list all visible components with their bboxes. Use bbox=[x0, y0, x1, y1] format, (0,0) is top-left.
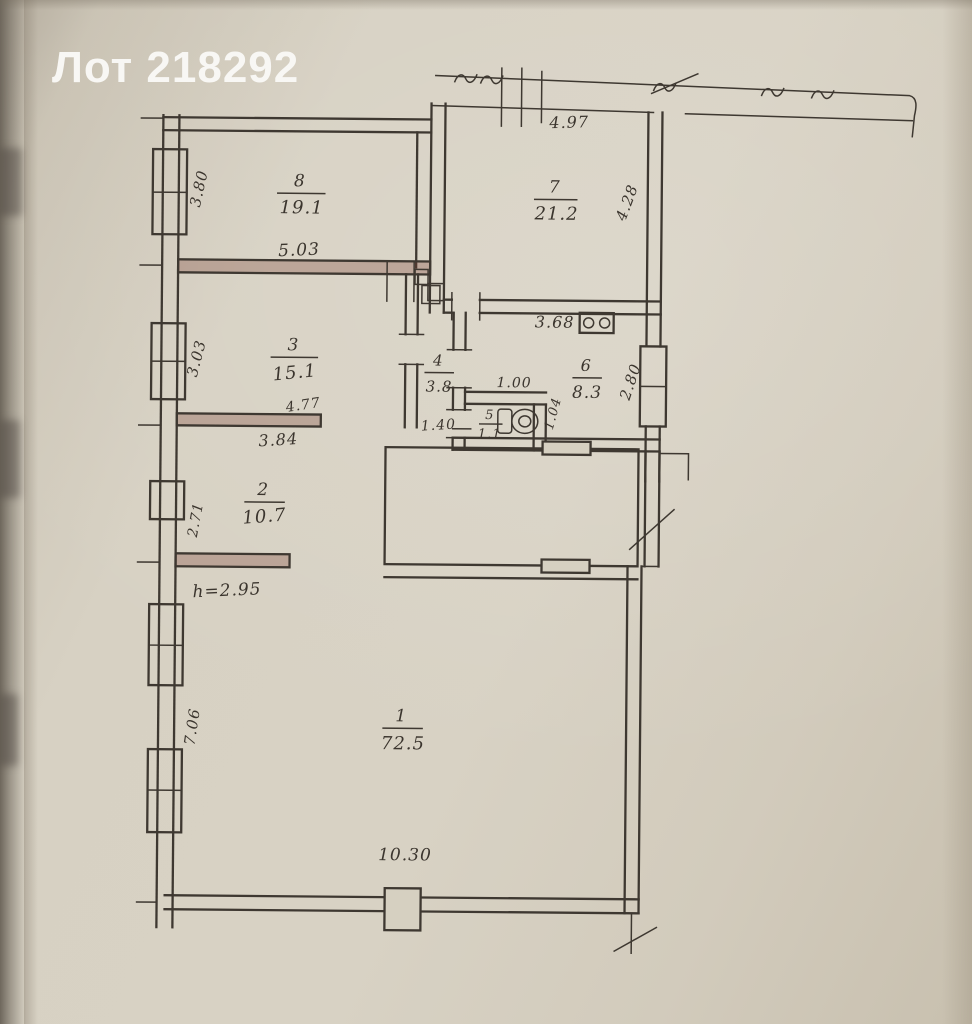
dim-room8-bottom: 5.03 bbox=[278, 239, 321, 261]
room-number: 4 bbox=[432, 352, 444, 370]
room-6-label: 6 8.3 bbox=[572, 356, 602, 403]
room-8-label: 8 19.1 bbox=[278, 171, 325, 218]
dim-room1-bottom: 10.30 bbox=[378, 845, 432, 865]
room-2-bottom-wall bbox=[176, 553, 290, 567]
room-number: 2 bbox=[256, 480, 269, 500]
break-slash bbox=[614, 927, 656, 951]
door-leaf bbox=[541, 559, 589, 572]
dim-room7-right: 4.28 bbox=[612, 182, 642, 224]
room-area: 21.2 bbox=[533, 203, 578, 224]
room-area: 72.5 bbox=[381, 733, 425, 754]
room-4-label: 4 3.8 bbox=[425, 351, 453, 395]
chimney-block bbox=[384, 888, 420, 930]
dim-ceiling-height: h=2.95 bbox=[192, 579, 262, 602]
room-1-label: 1 72.5 bbox=[381, 706, 425, 754]
room-number: 3 bbox=[287, 335, 299, 355]
room-area: 15.1 bbox=[272, 360, 318, 385]
toilet-icon bbox=[498, 409, 538, 433]
room-number: 8 bbox=[294, 171, 306, 191]
dim-wc-door: 1.40 bbox=[420, 417, 456, 435]
room-number: 7 bbox=[549, 178, 561, 198]
dim-room1-left: 7.06 bbox=[180, 707, 203, 747]
window-hatch bbox=[150, 481, 184, 519]
floor-plan: 8 19.1 7 21.2 3 15.1 4 3.8 5 bbox=[0, 0, 972, 1024]
room-number: 1 bbox=[395, 706, 407, 726]
break-squiggle bbox=[455, 75, 477, 83]
dim-room7-top: 4.97 bbox=[548, 112, 589, 132]
balcony-edge-line bbox=[431, 68, 916, 137]
room-2-label: 2 10.7 bbox=[241, 480, 287, 529]
room-7-label: 7 21.2 bbox=[533, 177, 578, 224]
room-number: 5 bbox=[485, 408, 494, 423]
dim-wc-width: 1.00 bbox=[496, 375, 531, 391]
room-1-walls bbox=[164, 562, 659, 953]
left-outer-wall bbox=[134, 115, 179, 927]
room-area: 1.1 bbox=[478, 427, 502, 442]
screenshot-root: 8 19.1 7 21.2 3 15.1 4 3.8 5 bbox=[0, 0, 972, 1024]
room-number: 6 bbox=[581, 356, 592, 375]
room-area: 3.8 bbox=[426, 377, 453, 395]
dim-room3-width-bottom: 3.84 bbox=[258, 429, 299, 450]
dim-room6-top: 3.68 bbox=[535, 312, 575, 331]
dim-wc-right: 1.04 bbox=[542, 396, 565, 432]
hall-walls bbox=[384, 440, 688, 580]
room-3-label: 3 15.1 bbox=[271, 335, 318, 386]
dim-room8-left: 3.80 bbox=[186, 168, 212, 208]
break-squiggle bbox=[481, 76, 503, 84]
room-2-walls bbox=[176, 553, 290, 567]
dim-room3-width-top: 4.77 bbox=[284, 395, 322, 416]
stove-icon bbox=[580, 313, 614, 333]
room-8-bottom-wall bbox=[178, 259, 430, 274]
room-area: 10.7 bbox=[242, 504, 288, 528]
dim-room3-left: 3.03 bbox=[183, 338, 210, 379]
dim-room2-left: 2.71 bbox=[185, 501, 207, 539]
window-hatches-left bbox=[147, 149, 187, 832]
lot-title: Лот 218292 bbox=[52, 46, 299, 90]
room-3-bottom-wall bbox=[177, 413, 321, 426]
door-leaf bbox=[543, 441, 591, 454]
room-area: 8.3 bbox=[572, 383, 602, 403]
room-area: 19.1 bbox=[280, 197, 324, 218]
